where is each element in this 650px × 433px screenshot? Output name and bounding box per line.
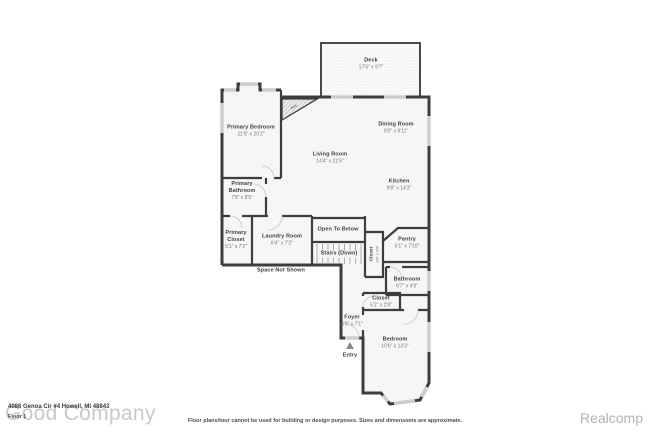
room-label-foyer: Foyer 4'9" x 7'1" bbox=[341, 314, 363, 327]
entry-arrow-icon bbox=[346, 342, 354, 349]
floorplan-drawing bbox=[0, 0, 650, 433]
disclaimer-text: Floor plans/tour cannot be used for buil… bbox=[188, 418, 462, 424]
room-label-stairs-down: Stairs (Down) bbox=[319, 251, 360, 258]
room-label-entry: Entry bbox=[343, 353, 358, 360]
room-label-deck: Deck 17'6" x 9'7" bbox=[359, 57, 384, 70]
room-label-living-room: Living Room 14'4" x 21'6" bbox=[313, 151, 347, 164]
room-label-laundry-room: Laundry Room 6'4" x 7'2" bbox=[262, 233, 302, 246]
property-address: 4086 Genoa Cir #4 Howell, MI 48843 bbox=[8, 404, 109, 410]
room-label-hall-closet: Closet 2'8" x 6'8" bbox=[369, 245, 380, 263]
room-label-closet: Closet 5'2" x 2'8" bbox=[370, 295, 392, 308]
room-label-pantry: Pantry 6'1" x 7'10" bbox=[395, 236, 420, 249]
room-label-primary-closet: Primary Closet 5'1" x 7'2" bbox=[221, 230, 251, 250]
floor-label: Floor 1 bbox=[8, 414, 26, 420]
floorplan-page: Deck 17'6" x 9'7" Primary Bedroom 11'9" … bbox=[0, 0, 650, 433]
room-label-dining-room: Dining Room 9'0" x 9'11" bbox=[378, 121, 413, 134]
room-label-kitchen: Kitchen 9'8" x 14'3" bbox=[387, 178, 412, 191]
room-label-primary-bathroom: Primary Bathroom 7'9" x 8'5" bbox=[224, 181, 260, 201]
realcomp-logo: Realcomp bbox=[580, 410, 643, 426]
room-label-bathroom: Bathroom 6'7" x 4'9" bbox=[394, 276, 421, 289]
room-label-open-to-below: Open To Below bbox=[318, 227, 359, 234]
room-label-bedroom: Bedroom 10'6" x 13'3" bbox=[381, 336, 408, 349]
room-label-space-not-shown: Space Not Shown bbox=[257, 268, 305, 275]
room-label-primary-bedroom: Primary Bedroom 11'9" x 20'2" bbox=[227, 124, 275, 137]
